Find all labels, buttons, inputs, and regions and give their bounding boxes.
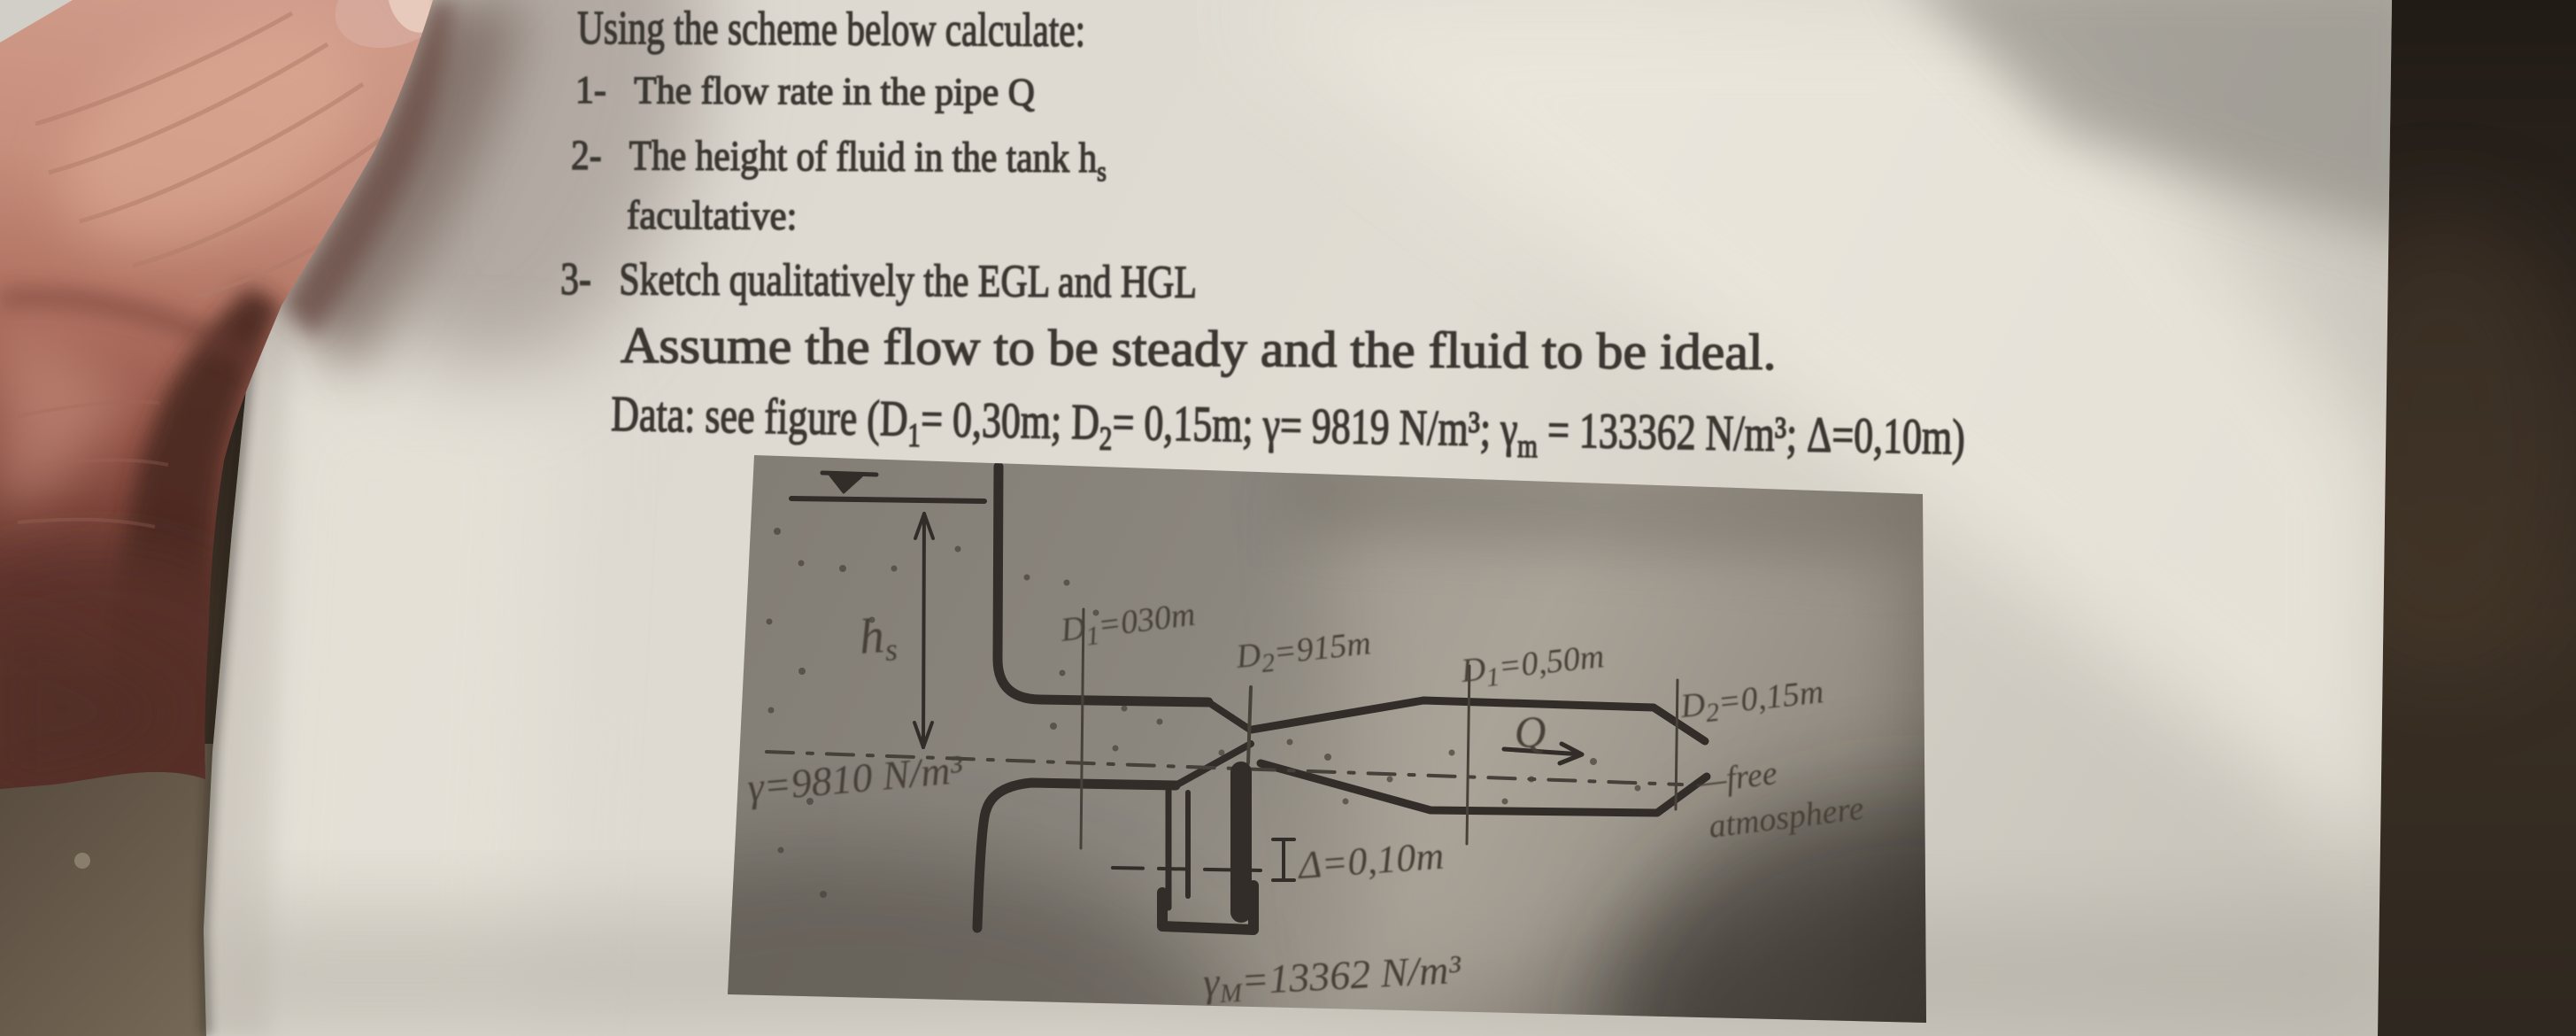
svg-text:3- Sketch qualitatively the: 3- Sketch qualitatively the EGL and HGL [560,254,1197,308]
svg-text:Using the scheme below calcula: Using the scheme below calculate: [577,2,1085,58]
svg-text:facultative:: facultative: [627,192,798,239]
svg-text:1- The flow rate in the pipe: 1- The flow rate in the pipe Q [575,69,1035,114]
svg-text:Assume the flow to be steady a: Assume the flow to be steady and the flu… [621,316,1777,381]
svg-text:2- The height of fluid in th: 2- The height of fluid in the tank hs [571,131,1107,187]
svg-text:Q: Q [1512,706,1548,758]
